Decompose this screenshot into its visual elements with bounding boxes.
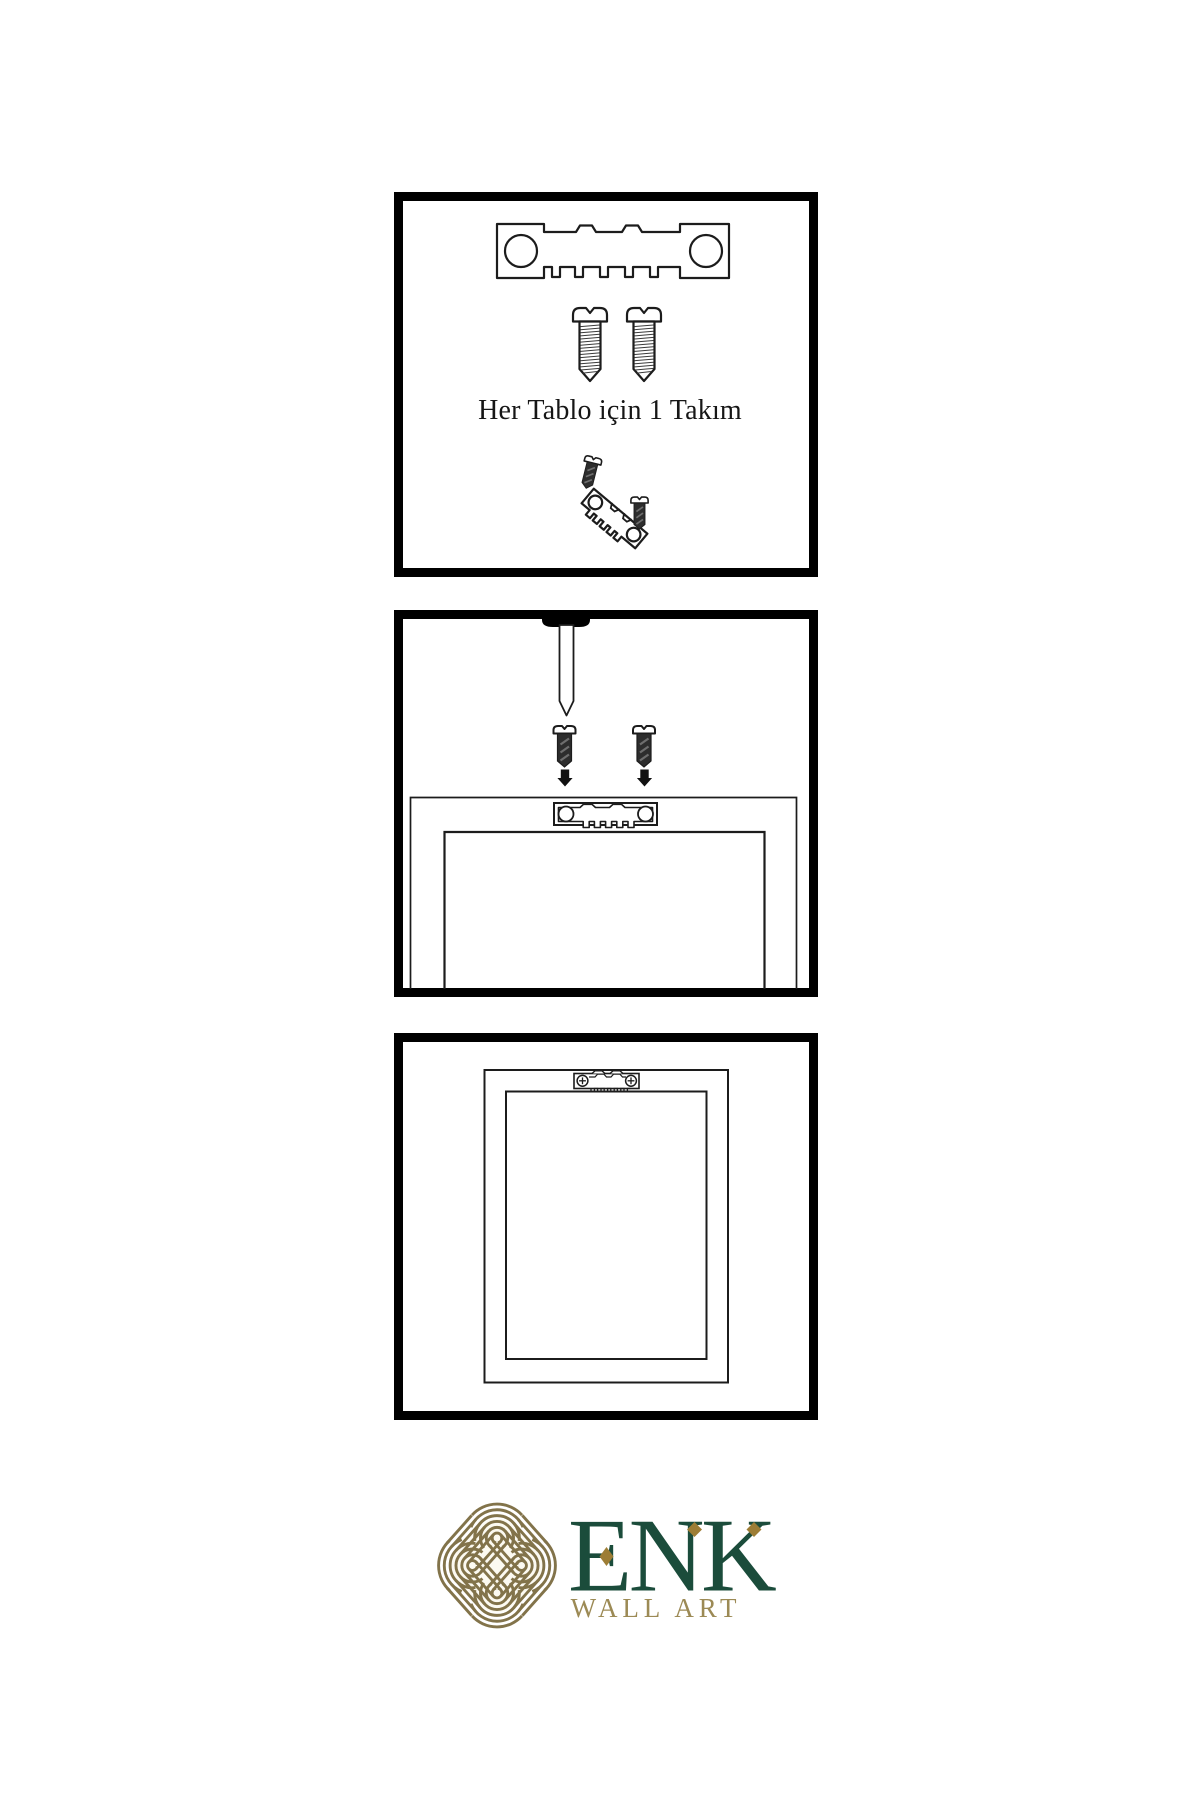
svg-text:WALL ART: WALL ART	[571, 1593, 742, 1623]
svg-text:Her Tablo için 1 Takım: Her Tablo için 1 Takım	[478, 395, 742, 426]
